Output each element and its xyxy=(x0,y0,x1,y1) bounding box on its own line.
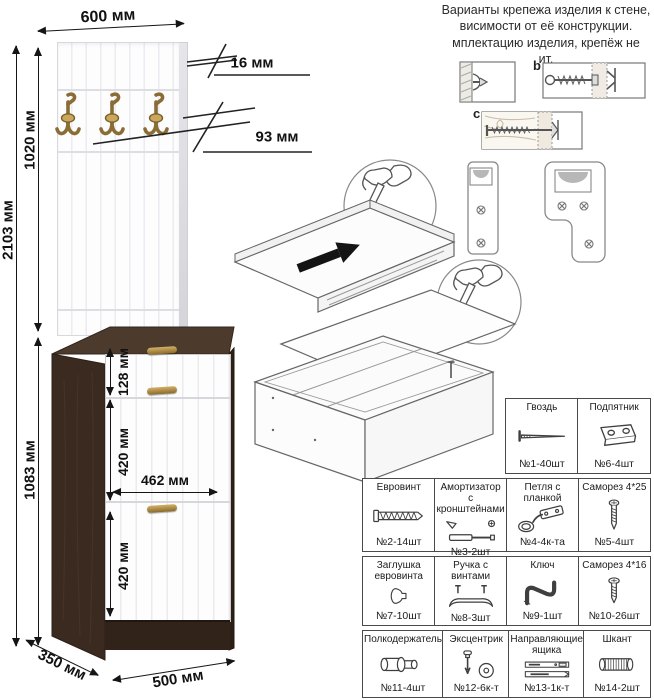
part-name: Ручка с винтами xyxy=(436,560,505,582)
part-name: с кронштейнами xyxy=(436,493,505,515)
panel-side-edge xyxy=(179,42,188,337)
parts-table-row-4: Полкодержатель №11-4шт Эксцентрик xyxy=(362,630,651,698)
part-euro-screw-cap: Заглушкаевровинта №7-10шт xyxy=(362,556,435,626)
part-qty: №13-1к-т xyxy=(524,682,569,694)
parts-table-row-1: Гвоздь №1-40шт Подпятник xyxy=(505,398,651,474)
part-euro-screw: Евровинт №2-14шт xyxy=(362,478,435,552)
part-qty: №9-1шт xyxy=(523,610,563,622)
wall-anchor-diagram-c xyxy=(482,112,582,149)
dowel-icon xyxy=(589,645,645,682)
part-qty: №14-2шт xyxy=(594,682,640,694)
part-screw-4x25: Саморез 4*25 №5-4шт xyxy=(578,478,651,552)
part-footplate: Подпятник №6-4шт xyxy=(577,398,651,474)
dim-arrow-inner-width xyxy=(113,492,217,493)
dim-label-total-height: 2103 мм xyxy=(0,200,17,260)
part-name: Шкант xyxy=(602,634,631,645)
wall-anchor-diagram-a xyxy=(460,62,515,102)
part-qty: №10-26шт xyxy=(589,610,640,622)
assembly-instruction-sheet: 600 мм 2103 мм 1020 мм 1083 мм 16 мм 93 … xyxy=(0,0,654,700)
dim-label-lower-door-height: 420 мм xyxy=(115,542,131,590)
panel-groove xyxy=(58,309,179,311)
dim-label-top-width: 600 мм xyxy=(80,7,136,28)
part-qty: №1-40шт xyxy=(519,458,565,470)
dim-arrow-upper-door-height xyxy=(110,400,111,500)
wall-panel xyxy=(57,42,180,336)
dim-label-upper-door-height: 420 мм xyxy=(115,428,131,476)
dim-arrow-drawer-height xyxy=(110,349,111,395)
coat-hook-icon xyxy=(52,90,84,144)
dim-label-hook-spacing: 93 мм xyxy=(255,129,298,146)
nail-icon xyxy=(514,413,570,458)
note-line: висимости от её конструкции. xyxy=(440,18,652,34)
dim-label-drawer-height: 128 мм xyxy=(115,348,131,396)
hanging-bracket-wide xyxy=(545,162,605,262)
part-name: Гвоздь xyxy=(526,402,557,413)
part-hinge: Петля с планкой №4-4к-та xyxy=(506,478,579,552)
hex-key-icon xyxy=(514,571,570,610)
euro-screw-cap-icon xyxy=(371,582,427,610)
part-qty: №8-3шт xyxy=(451,612,491,624)
hinge-icon xyxy=(514,504,570,536)
dim-label-bottom-width: 500 мм xyxy=(151,667,204,692)
gas-lift-icon xyxy=(443,516,499,546)
dim-arrow-lower-door-height xyxy=(110,512,111,616)
part-name: Направляющие xyxy=(510,634,583,645)
cam-lock-icon xyxy=(448,645,504,682)
part-name: Эксцентрик xyxy=(449,634,502,645)
part-name: Саморез 4*16 xyxy=(582,560,646,571)
part-name: Ключ xyxy=(530,560,554,571)
part-name: Саморез 4*25 xyxy=(582,482,646,493)
wall-mount-diagrams xyxy=(440,50,654,290)
dim-label-inner-width: 462 мм xyxy=(141,472,189,488)
part-qty: №5-4шт xyxy=(594,536,634,548)
part-nail: Гвоздь №1-40шт xyxy=(505,398,579,474)
part-name: Амортизатор xyxy=(436,482,505,493)
part-name: евровинта xyxy=(375,571,423,582)
part-screw-4x16: Саморез 4*16 №10-26шт xyxy=(578,556,651,626)
part-qty: №12-6к-т xyxy=(454,682,499,694)
part-qty: №11-4шт xyxy=(381,682,426,694)
note-line: мплектацию изделия, крепёж не xyxy=(440,35,652,51)
dim-arrow-total-height xyxy=(16,46,17,646)
part-handle: Ручка с винтами №8-3шт xyxy=(434,556,507,626)
hanging-bracket-narrow xyxy=(468,162,498,254)
drawer-slides-icon xyxy=(519,656,575,682)
part-name: Петля с планкой xyxy=(508,482,577,504)
part-name: Заглушка xyxy=(375,560,423,571)
cabinet-plinth xyxy=(105,620,230,650)
wall-anchor-diagram-b xyxy=(543,63,645,98)
footplate-icon xyxy=(586,413,642,458)
note-line: Варианты крепежа изделия к стене, xyxy=(440,2,652,18)
drawer-door-gap xyxy=(106,397,230,399)
part-qty: №2-14шт xyxy=(376,536,422,548)
handle-icon xyxy=(443,582,499,612)
euro-screw-icon xyxy=(371,493,427,536)
door-door-gap xyxy=(106,501,230,503)
part-dowel: Шкант №14-2шт xyxy=(583,630,651,698)
part-hex-key: Ключ №9-1шт xyxy=(506,556,579,626)
dim-label-panel-height: 1020 мм xyxy=(22,110,39,170)
screw-4x16-icon xyxy=(586,571,642,610)
hardware-parts-table: Гвоздь №1-40шт Подпятник xyxy=(362,398,651,698)
part-name: Евровинт xyxy=(377,482,421,493)
part-qty: №4-4к-та xyxy=(520,536,565,548)
shelf-pin-icon xyxy=(375,645,431,682)
dim-label-cabinet-height: 1083 мм xyxy=(22,440,39,500)
part-name: Подпятник xyxy=(589,402,638,413)
part-name: ящика xyxy=(510,645,583,656)
dim-arrow-panel-height xyxy=(38,48,39,331)
parts-table-row-2: Евровинт №2-14шт Амортизаторс кронштейна… xyxy=(362,478,651,552)
parts-table-row-3: Заглушкаевровинта №7-10шт Ручка с винтам… xyxy=(362,556,651,626)
dim-label-thickness: 16 мм xyxy=(230,55,273,72)
part-shelf-pin: Полкодержатель №11-4шт xyxy=(362,630,444,698)
part-drawer-slides: Направляющиеящика №13-1к-т xyxy=(508,630,585,698)
part-qty: №6-4шт xyxy=(594,458,634,470)
part-qty: №7-10шт xyxy=(376,610,422,622)
part-name: Полкодержатель xyxy=(364,634,442,645)
screw-4x25-icon xyxy=(586,493,642,536)
part-gas-lift: Амортизаторс кронштейнами №3-2шт xyxy=(434,478,507,552)
part-cam-lock: Эксцентрик №12-6к-т xyxy=(442,630,510,698)
